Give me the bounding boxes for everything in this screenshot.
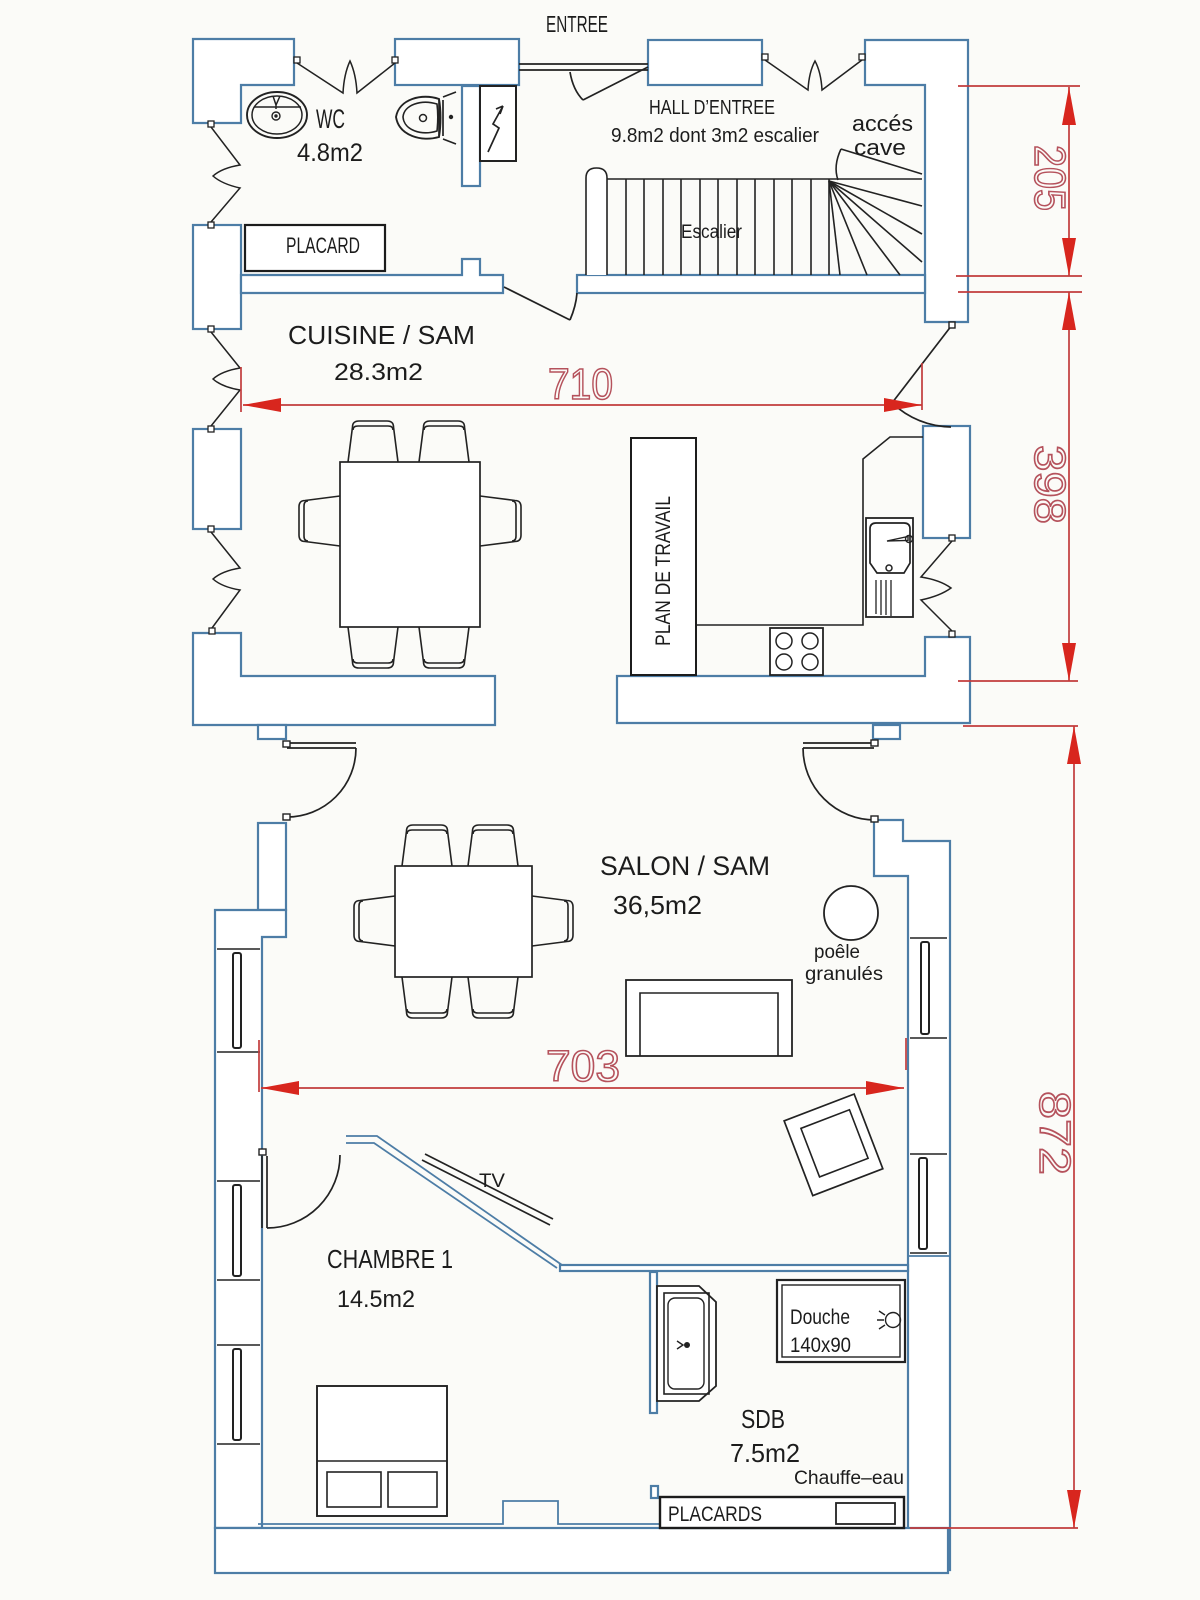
- svg-text:CUISINE / SAM: CUISINE / SAM: [288, 320, 475, 350]
- svg-text:Escalier: Escalier: [681, 222, 743, 243]
- svg-text:398: 398: [1025, 445, 1074, 524]
- svg-text:14.5m2: 14.5m2: [337, 1286, 415, 1313]
- svg-text:205: 205: [1025, 145, 1074, 211]
- svg-text:PLACARDS: PLACARDS: [668, 1503, 762, 1526]
- svg-text:HALL D’ENTREE: HALL D’ENTREE: [649, 97, 775, 119]
- svg-text:Chauffe–eau: Chauffe–eau: [794, 1468, 904, 1489]
- svg-text:TV: TV: [479, 1171, 505, 1192]
- svg-text:4.8m2: 4.8m2: [297, 139, 363, 167]
- svg-text:WC: WC: [316, 104, 345, 134]
- svg-text:872: 872: [1030, 1091, 1079, 1175]
- svg-text:28.3m2: 28.3m2: [334, 359, 423, 386]
- svg-text:PLACARD: PLACARD: [286, 233, 360, 258]
- svg-text:Douche: Douche: [790, 1306, 850, 1329]
- svg-text:CHAMBRE 1: CHAMBRE 1: [327, 1244, 453, 1274]
- svg-text:SDB: SDB: [741, 1404, 785, 1434]
- svg-text:granulés: granulés: [805, 964, 883, 985]
- svg-text:SALON / SAM: SALON / SAM: [600, 851, 770, 881]
- svg-text:ENTREE: ENTREE: [546, 11, 608, 37]
- svg-text:PLAN DE TRAVAIL: PLAN DE TRAVAIL: [652, 496, 675, 646]
- svg-text:9.8m2 dont 3m2 escalier: 9.8m2 dont 3m2 escalier: [611, 125, 819, 147]
- svg-text:poêle: poêle: [814, 942, 860, 963]
- svg-text:7.5m2: 7.5m2: [730, 1438, 800, 1468]
- svg-text:703: 703: [546, 1042, 620, 1091]
- svg-text:36,5m2: 36,5m2: [613, 890, 702, 920]
- svg-text:accés: accés: [852, 111, 913, 136]
- svg-text:710: 710: [548, 360, 613, 409]
- svg-text:cave: cave: [854, 135, 906, 160]
- svg-text:140x90: 140x90: [790, 1334, 851, 1357]
